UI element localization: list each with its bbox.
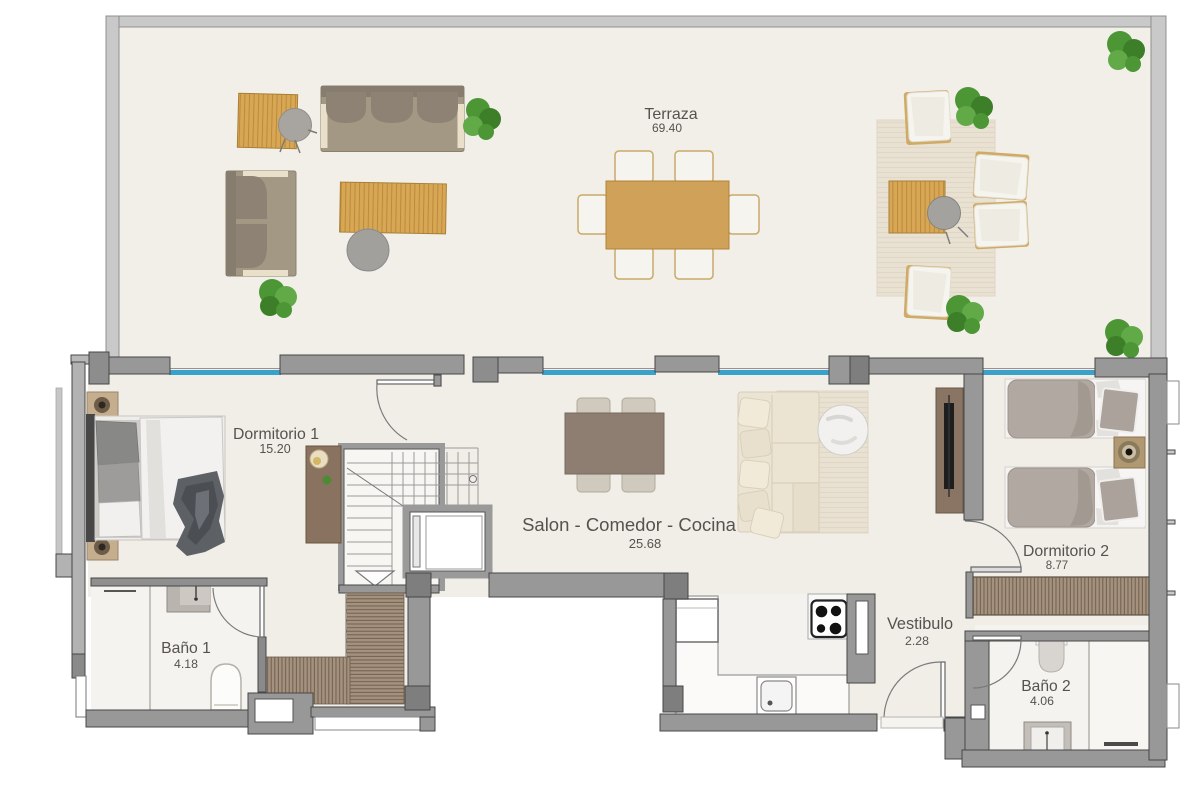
svg-text:69.40: 69.40 [652,121,682,135]
svg-text:2.28: 2.28 [905,634,929,648]
svg-text:Baño 1: Baño 1 [161,640,211,657]
svg-text:4.06: 4.06 [1030,694,1054,708]
svg-text:25.68: 25.68 [629,536,662,551]
svg-text:Salon - Comedor - Cocina: Salon - Comedor - Cocina [522,514,737,535]
svg-text:Vestibulo: Vestibulo [887,615,953,633]
svg-text:4.18: 4.18 [174,657,198,671]
svg-text:15.20: 15.20 [259,442,290,456]
svg-text:8.77: 8.77 [1046,560,1068,572]
svg-text:Dormitorio 2: Dormitorio 2 [1023,543,1109,560]
svg-text:Baño 2: Baño 2 [1021,678,1070,695]
svg-text:Dormitorio 1: Dormitorio 1 [233,426,319,443]
